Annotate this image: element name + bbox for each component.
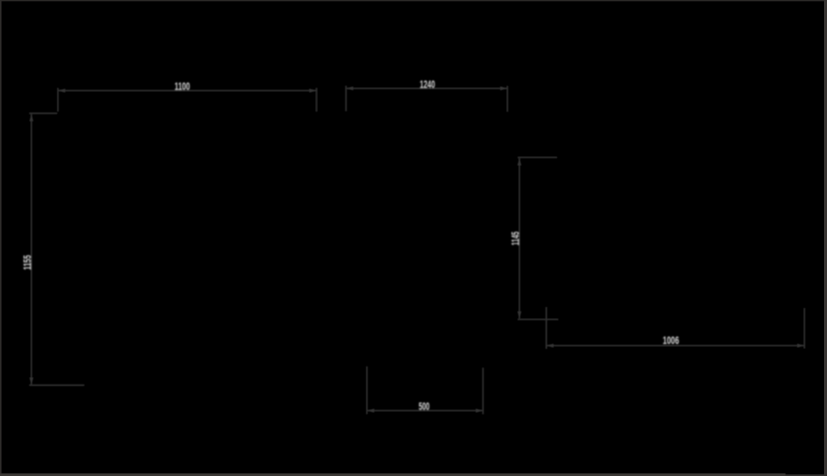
svg-text:1240: 1240 — [420, 79, 435, 91]
svg-text:1006: 1006 — [663, 335, 679, 347]
svg-text:1145: 1145 — [510, 232, 522, 246]
svg-text:1155: 1155 — [22, 255, 34, 270]
svg-text:1100: 1100 — [175, 81, 191, 93]
svg-text:500: 500 — [419, 401, 430, 413]
